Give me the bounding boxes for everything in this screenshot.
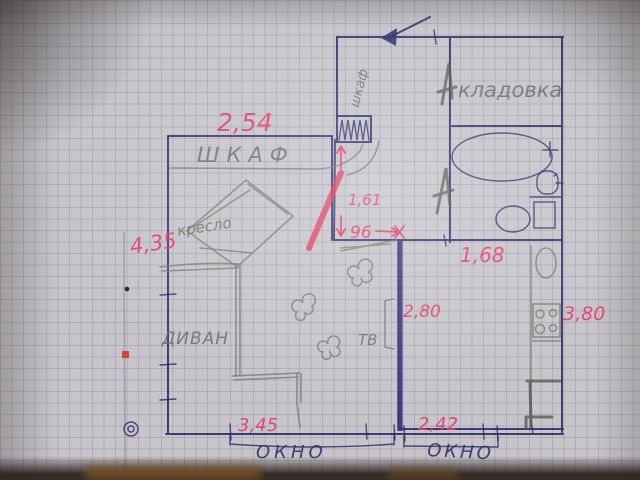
label-armchair: кресло — [176, 214, 233, 240]
dim-doorway: 96 — [350, 223, 372, 243]
hatched-closet-block — [337, 116, 371, 142]
table-wood-patch-left — [85, 466, 260, 480]
sofa-vertical-edge — [236, 264, 240, 376]
cloud-doodle-2 — [348, 259, 373, 286]
entrance-arrow-head — [381, 28, 397, 46]
kitchen-fittings — [526, 246, 560, 428]
red-down-arrow — [337, 216, 345, 236]
label-tv: ТВ — [358, 331, 377, 349]
entrance-arrow-shaft — [392, 17, 430, 36]
black-dot-mark — [125, 287, 130, 292]
cloud-doodle-3 — [318, 336, 340, 359]
fridge-sketch — [526, 381, 560, 428]
bathroom-sink — [537, 171, 558, 194]
kitchen-sink — [536, 248, 556, 278]
storage-door-mark — [438, 63, 456, 104]
dim-hall-height: 1,61 — [348, 191, 381, 209]
dim-wardrobe-wall: 2,54 — [217, 108, 273, 137]
label-storage: кладовка — [458, 78, 562, 102]
label-sofa: ДИВАН — [161, 329, 229, 349]
tick-top-wall — [434, 30, 436, 44]
highlighter-stroke — [309, 173, 341, 248]
toilet-bowl — [496, 206, 530, 232]
tv-bracket — [385, 299, 394, 349]
stove-burner-4 — [550, 325, 557, 332]
stove-burner-1 — [536, 310, 544, 318]
floorplan-drawing: 2,54 4,35 1,61 96 1,68 2,80 3,80 3,45 2,… — [0, 0, 640, 480]
dim-kitchen-left: 2,80 — [403, 302, 441, 322]
dim-window-right: 2,42 — [418, 414, 458, 435]
bathroom-fixtures — [452, 133, 563, 232]
sofa-step-edge — [232, 373, 300, 380]
red-up-arrow — [337, 146, 345, 170]
stove-burner-3 — [536, 325, 545, 334]
sofa-end-edge — [297, 373, 301, 428]
dim-living-left: 4,35 — [128, 228, 178, 258]
circled-mark-icon — [124, 422, 138, 436]
label-wardrobe: ШКАФ — [197, 143, 295, 167]
tick-hall-bottom-wall — [444, 235, 446, 246]
bathtub — [452, 133, 552, 181]
dim-bath-wall: 1,68 — [460, 243, 505, 267]
margin-marks — [122, 232, 138, 472]
dim-window-left: 3,45 — [238, 415, 278, 436]
stove-burner-2 — [550, 310, 557, 317]
photo-of-floorplan-sketch: 2,54 4,35 1,61 96 1,68 2,80 3,80 3,45 2,… — [0, 0, 640, 480]
toilet-cistern — [534, 202, 555, 228]
red-square-mark — [122, 351, 129, 358]
circled-mark-outer — [124, 422, 138, 436]
table-wood-patch-right — [388, 468, 458, 480]
dim-kitchen-right: 3,80 — [563, 303, 605, 325]
sofa-top-edge — [160, 263, 240, 271]
cloud-doodle-1 — [292, 294, 316, 321]
red-right-arrow — [376, 226, 404, 238]
circled-mark-inner — [128, 426, 134, 432]
entrance-arrow-icon — [381, 17, 430, 46]
hatched-block-zigzag — [339, 120, 369, 140]
label-hall-closet: шкаф — [347, 68, 372, 109]
